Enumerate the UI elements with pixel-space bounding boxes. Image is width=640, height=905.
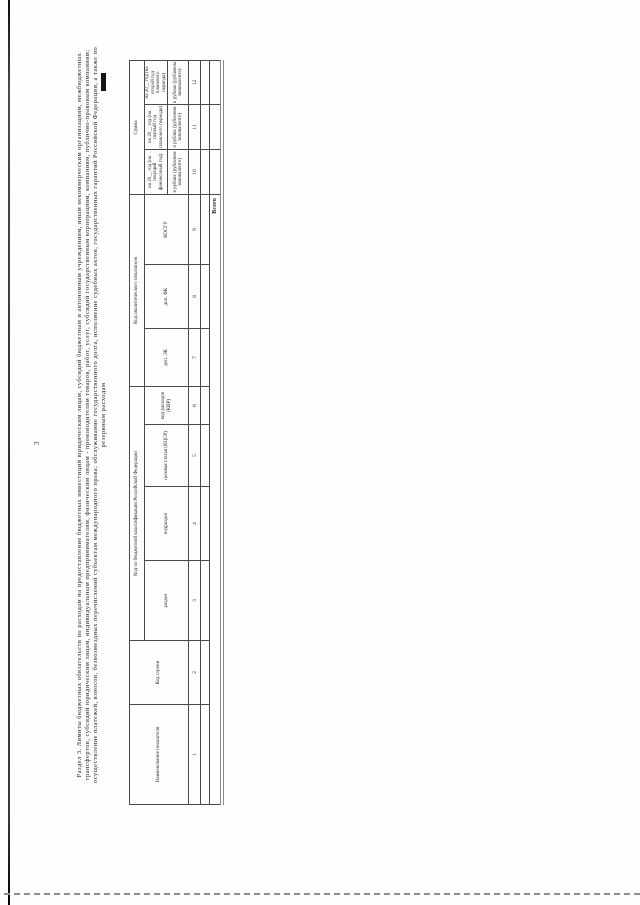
header-razdel: раздел bbox=[145, 561, 189, 641]
section-title-line: резервным расходам bbox=[100, 25, 108, 805]
empty-data-row bbox=[201, 60, 210, 804]
redaction-mark bbox=[101, 73, 106, 91]
header-unit-current: в рублях (рублевом эквиваленте) bbox=[168, 149, 189, 194]
empty-data-cell bbox=[201, 328, 210, 386]
empty-data-cell bbox=[201, 487, 210, 561]
empty-data-cell bbox=[201, 149, 210, 194]
header-year-second: на 20__ год (на второй год планового пер… bbox=[145, 60, 168, 104]
scan-edge-artifact-bottom bbox=[4, 893, 640, 895]
header-analytic-group: Код аналитического показателя bbox=[130, 194, 145, 386]
header-kvr: вид расходов (КВР) bbox=[145, 386, 189, 424]
column-number-cell: 3 bbox=[189, 561, 201, 641]
header-kosgu: КОСГУ bbox=[145, 194, 189, 264]
scan-edge-artifact-left bbox=[8, 0, 10, 905]
empty-data-cell bbox=[201, 561, 210, 641]
total-sum-cell bbox=[210, 60, 222, 104]
header-kcsr: целевая статья (КЦСР) bbox=[145, 425, 189, 487]
empty-data-cell bbox=[201, 60, 210, 104]
section-title-line: осуществление платежей, взносов, безвозм… bbox=[92, 25, 100, 805]
total-row-label: Всего bbox=[210, 194, 222, 804]
header-line-code-col: Код строки bbox=[130, 641, 189, 705]
header-year-first: на 20__ год (на первый год планового пер… bbox=[145, 104, 168, 149]
column-number-cell: 9 bbox=[189, 194, 201, 264]
header-dop-ek: доп. ЭК bbox=[145, 328, 189, 386]
empty-data-cell bbox=[201, 386, 210, 424]
empty-data-cell bbox=[201, 194, 210, 264]
header-unit-first: в рублях (рублевом эквиваленте) bbox=[168, 104, 189, 149]
column-number-cell: 1 bbox=[189, 705, 201, 805]
header-podrazdel: подраздел bbox=[145, 487, 189, 561]
total-sum-cell bbox=[210, 149, 222, 194]
empty-data-cell bbox=[201, 425, 210, 487]
column-number-cell: 10 bbox=[189, 149, 201, 194]
empty-data-cell bbox=[201, 705, 210, 805]
header-sum-group: Сумма bbox=[130, 60, 145, 194]
empty-data-cell bbox=[201, 264, 210, 328]
section-title-line: Раздел 3. Лимиты бюджетных обязательств … bbox=[76, 25, 84, 805]
page-number: 3 bbox=[33, 442, 41, 446]
section-title-line: трансфертов, субсидий юридическим лицам,… bbox=[84, 25, 92, 805]
section-title: Раздел 3. Лимиты бюджетных обязательств … bbox=[76, 25, 108, 805]
rotated-content: 3 Раздел 3. Лимиты бюджетных обязательст… bbox=[73, 25, 223, 805]
empty-data-cell bbox=[201, 641, 210, 705]
header-dop-fk: доп. ФК bbox=[145, 264, 189, 328]
empty-data-cell bbox=[201, 104, 210, 149]
header-name-col: Наименование показателя bbox=[130, 705, 189, 805]
column-number-cell: 6 bbox=[189, 386, 201, 424]
column-number-cell: 2 bbox=[189, 641, 201, 705]
column-number-cell: 4 bbox=[189, 487, 201, 561]
total-row: Всего bbox=[210, 60, 222, 804]
column-number-cell: 8 bbox=[189, 264, 201, 328]
column-number-cell: 7 bbox=[189, 328, 201, 386]
column-number-cell: 11 bbox=[189, 104, 201, 149]
header-unit-second: в рублях (рублевом эквиваленте) bbox=[168, 60, 189, 104]
column-number-cell: 5 bbox=[189, 425, 201, 487]
scanned-page: 3 Раздел 3. Лимиты бюджетных обязательст… bbox=[0, 0, 640, 905]
column-number-cell: 12 bbox=[189, 60, 201, 104]
header-bk-group: Код по бюджетной классификации Российско… bbox=[130, 386, 145, 640]
column-numbers-row: 1 2 3 4 5 6 7 8 9 10 11 12 bbox=[189, 60, 201, 804]
header-year-current: на 20__ год (на текущий финансовый год) bbox=[145, 149, 168, 194]
total-sum-cell bbox=[210, 104, 222, 149]
budget-limits-table: Наименование показателя Код строки Код п… bbox=[129, 60, 224, 805]
